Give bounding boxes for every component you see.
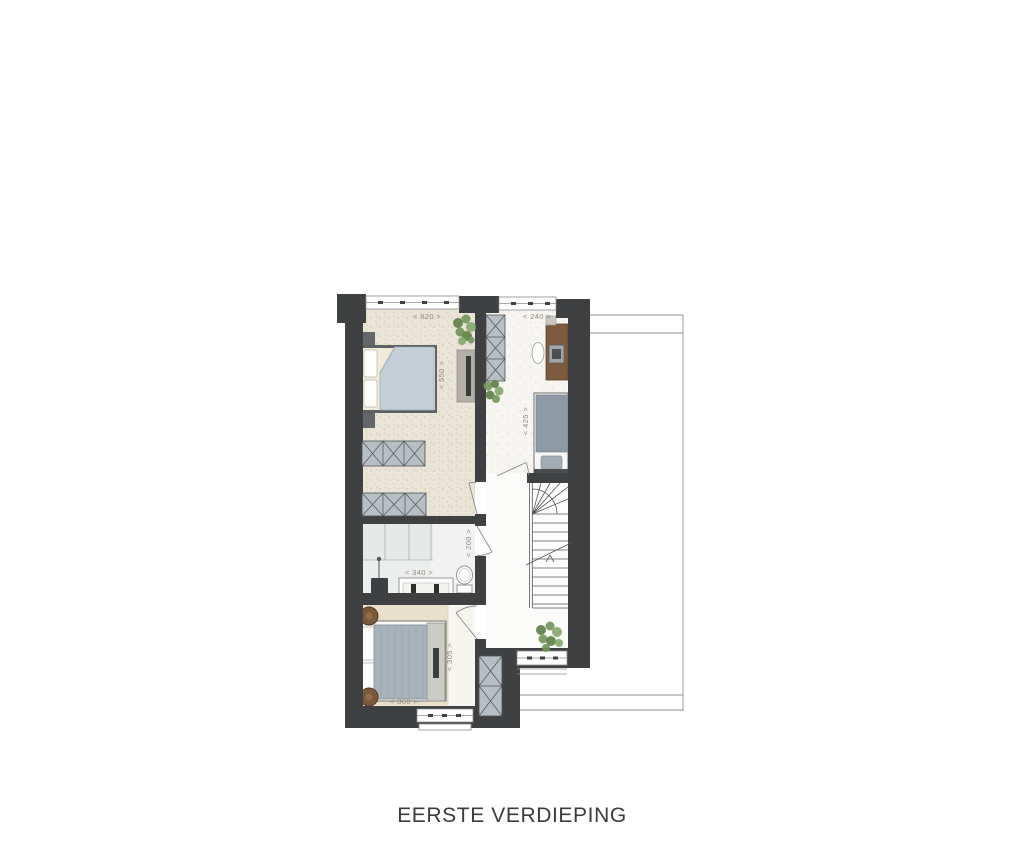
wall-bathroom-south xyxy=(363,593,486,605)
dim-bedroom-study-width: < 240 > xyxy=(523,312,551,321)
desk-chair xyxy=(532,343,544,364)
tv-screen xyxy=(433,648,439,678)
dim-bathroom-width: < 340 > xyxy=(405,568,433,577)
closet-main-row1 xyxy=(362,441,425,466)
closet-study xyxy=(486,315,505,381)
closet-hall xyxy=(479,656,502,716)
pillow xyxy=(364,350,377,377)
dim-bedroom-back-width: < 360 > xyxy=(390,697,418,706)
floorplan-drawing: < 820 > < 550 > < 240 > < 425 > < 340 > … xyxy=(330,288,686,734)
pillow xyxy=(362,627,375,660)
dim-bedroom-main-depth: < 550 > xyxy=(437,361,446,389)
bed-back-duvet xyxy=(374,625,428,699)
pillow xyxy=(364,380,377,407)
laptop-screen xyxy=(552,349,561,359)
shower-head xyxy=(377,557,381,561)
wall-study-south xyxy=(527,473,568,483)
stairwell-floor xyxy=(532,483,568,608)
window-north-study xyxy=(499,297,556,310)
dim-bathroom-depth: < 200 > xyxy=(464,529,473,557)
wall-divider xyxy=(475,309,486,482)
toilet xyxy=(457,566,473,593)
wall-bathroom-north xyxy=(363,516,486,524)
bed-study-duvet xyxy=(536,395,568,452)
wall-west xyxy=(345,309,363,728)
dim-bedroom-back-depth: < 305 > xyxy=(445,643,454,671)
closet-main-row2 xyxy=(362,493,426,516)
tv-screen xyxy=(466,356,471,396)
staircase xyxy=(526,483,571,608)
dim-bedroom-main-width: < 820 > xyxy=(413,312,441,321)
tv-cabinet xyxy=(457,350,475,402)
window-north-main xyxy=(366,296,459,309)
pillow xyxy=(541,456,562,469)
dim-bedroom-study-depth: < 425 > xyxy=(521,407,530,435)
floorplan-page: < 820 > < 550 > < 240 > < 425 > < 340 > … xyxy=(0,0,1024,853)
bed-study xyxy=(534,393,568,475)
wall-east xyxy=(568,309,590,668)
window-south-back xyxy=(417,709,473,730)
shower-glass xyxy=(363,524,433,560)
page-title: EERSTE VERDIEPING xyxy=(0,804,1024,828)
window-hall xyxy=(517,651,567,674)
desk xyxy=(546,316,568,380)
